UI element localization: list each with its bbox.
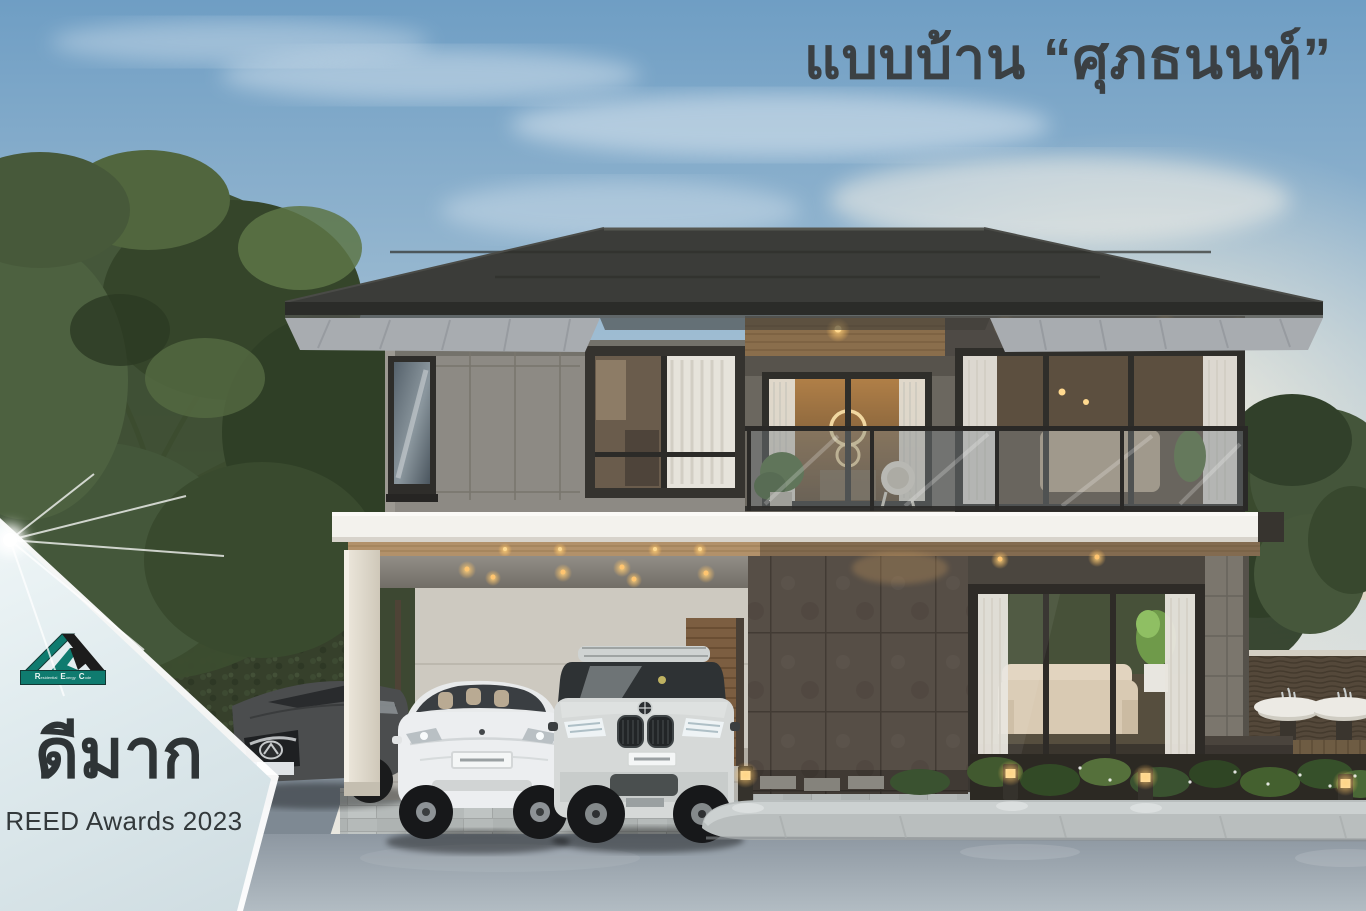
carport-column [344,550,380,796]
left-bedroom-window [585,346,745,498]
logo-word-3: Code [79,674,91,681]
main-house [223,228,1323,809]
floor-slab [332,512,1284,557]
page-title: แบบบ้าน “ศุภธนนท์” [804,14,1332,104]
corner-window [386,356,438,502]
reed-logo-banner: Residential Energy Code [20,670,106,685]
house-render-poster: แบบบ้าน “ศุภธนนท์” Residential Energy Co… [0,0,1366,911]
award-name-text: REED Awards 2023 [4,806,244,837]
logo-word-1: Residential [35,674,58,681]
curb [702,800,1366,840]
logo-word-2: Energy [60,674,75,681]
award-badge: Residential Energy Code ดีมาก REED Award… [0,518,330,911]
garden-bed [967,754,1366,802]
stone-wall [748,552,968,794]
glass-balustrade [745,426,1248,511]
award-rating-text: ดีมาก [0,714,238,794]
